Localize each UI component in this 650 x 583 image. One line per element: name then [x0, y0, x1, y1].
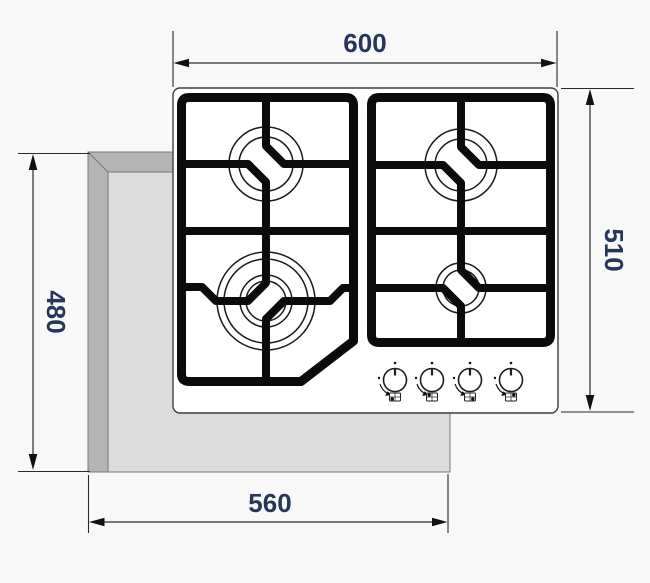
arrow-left-icon	[174, 59, 190, 68]
hob-body	[173, 88, 558, 413]
arrow-down-icon	[586, 395, 595, 411]
dimension-left: 480	[18, 154, 90, 472]
dimension-label-left: 480	[41, 290, 71, 333]
hob-installation-diagram: 600 510 480 560	[0, 0, 650, 583]
arrow-left-icon	[89, 518, 105, 527]
dimension-right: 510	[561, 89, 634, 413]
arrow-down-icon	[29, 454, 38, 470]
arrow-right-icon	[432, 518, 448, 527]
dimension-top: 600	[173, 28, 557, 87]
arrow-right-icon	[541, 59, 557, 68]
dimension-label-bottom: 560	[248, 488, 291, 518]
diagram-canvas: 600 510 480 560	[0, 0, 650, 583]
dimension-label-top: 600	[343, 28, 386, 58]
arrow-up-icon	[586, 89, 595, 105]
arrow-up-icon	[29, 154, 38, 170]
dimension-bottom: 560	[89, 474, 449, 533]
dimension-label-right: 510	[599, 228, 629, 271]
